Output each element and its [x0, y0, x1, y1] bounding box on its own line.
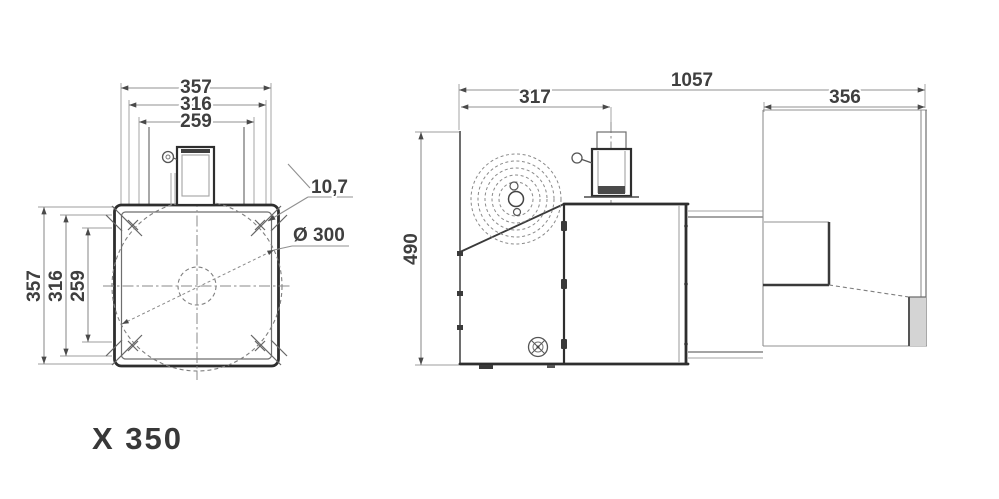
- cable-gland-icon: [163, 152, 174, 163]
- front-dim-side-inner: 259: [68, 228, 112, 342]
- screw-icon: [561, 279, 567, 289]
- screw-icon: [561, 339, 567, 349]
- side-terminal-box: [572, 132, 639, 197]
- side-outlet-box: [763, 110, 927, 346]
- dim-label-316-side: 316: [46, 270, 67, 302]
- shaft-circle: [509, 192, 524, 207]
- side-housing-body: [457, 131, 688, 369]
- side-dim-right-section: 356: [764, 87, 925, 112]
- technical-drawing-canvas: 357 316 259 357 316 259: [0, 0, 999, 499]
- side-view: 1057 317 356 490: [401, 70, 927, 369]
- dim-label-259-top: 259: [180, 111, 212, 132]
- drain-symbol: [529, 338, 548, 357]
- callout-label-hole: 10,7: [311, 177, 348, 198]
- side-duct: [688, 211, 763, 358]
- front-dim-top-inner: 259: [139, 111, 254, 132]
- terminal-box-lid: [181, 149, 210, 153]
- housing-diagonal-edge: [460, 204, 564, 252]
- drawing-page: 357 316 259 357 316 259: [0, 0, 999, 499]
- side-dim-overall-height: 490: [401, 132, 459, 365]
- foot: [479, 365, 493, 369]
- side-dim-left-section: 317: [461, 87, 611, 205]
- dim-label-259-side: 259: [68, 270, 89, 302]
- damper-open-position: [829, 285, 909, 297]
- front-callout-diameter: Ø 300: [122, 225, 349, 324]
- front-callout-hole: 10,7: [268, 164, 353, 221]
- screw-icon: [561, 221, 567, 231]
- dim-label-357-side: 357: [24, 270, 45, 302]
- callout-label-diameter: Ø 300: [293, 225, 345, 246]
- foot: [547, 365, 555, 368]
- dim-label-317: 317: [519, 87, 551, 108]
- side-scroll-spiral: [471, 154, 561, 244]
- front-terminal-box: [163, 147, 215, 205]
- model-label: X 350: [92, 421, 183, 456]
- dim-label-1057: 1057: [671, 70, 713, 91]
- cable-gland-icon: [572, 153, 582, 163]
- front-view: 357 316 259 357 316 259: [24, 77, 353, 380]
- dim-label-490: 490: [401, 233, 422, 265]
- dim-label-356: 356: [829, 87, 861, 108]
